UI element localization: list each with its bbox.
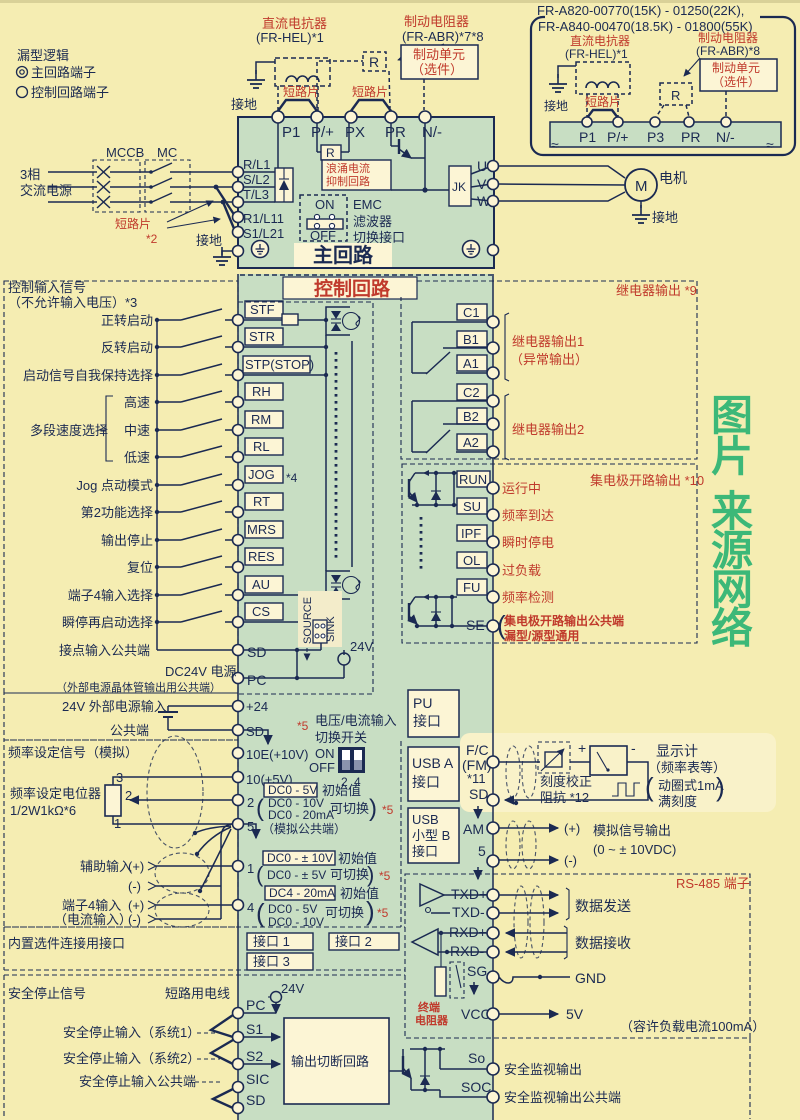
svg-text:N/-: N/-: [716, 129, 735, 145]
svg-text:JK: JK: [452, 180, 466, 194]
svg-text:AM: AM: [463, 821, 484, 837]
svg-text:1: 1: [247, 861, 254, 876]
svg-text:接口: 接口: [412, 844, 438, 859]
svg-text:阻抗 *12: 阻抗 *12: [540, 790, 589, 805]
svg-text:复位: 复位: [127, 560, 153, 575]
svg-text:抑制回路: 抑制回路: [326, 174, 370, 188]
svg-text:(FR-HEL)*1: (FR-HEL)*1: [256, 30, 324, 45]
svg-text:短路片: 短路片: [352, 84, 388, 99]
svg-text:中速: 中速: [124, 423, 150, 438]
svg-text:OFF: OFF: [310, 228, 336, 243]
svg-text:制动电阻器: 制动电阻器: [698, 31, 758, 45]
svg-text:可切换: 可切换: [325, 905, 364, 920]
svg-text:VCC: VCC: [461, 1006, 491, 1022]
svg-text:频率设定电位器: 频率设定电位器: [10, 786, 101, 801]
svg-text:（选件）: （选件）: [411, 62, 463, 77]
svg-text:SU: SU: [463, 499, 481, 514]
svg-text:≈: ≈: [766, 137, 774, 153]
svg-text:接口 3: 接口 3: [253, 954, 290, 969]
svg-text:OL: OL: [463, 553, 480, 568]
svg-text:安全监视输出: 安全监视输出: [504, 1062, 582, 1077]
svg-text:启动信号自我保持选择: 启动信号自我保持选择: [23, 368, 153, 383]
svg-text:终端: 终端: [418, 1000, 440, 1014]
svg-text:OFF: OFF: [309, 760, 335, 775]
svg-text:制动单元: 制动单元: [413, 47, 465, 62]
svg-text:（频率表等）: （频率表等）: [648, 760, 726, 775]
svg-text:切换开关: 切换开关: [315, 730, 367, 745]
svg-text:RL: RL: [253, 439, 270, 454]
svg-text:(: (: [256, 795, 264, 822]
svg-text:直流电抗器: 直流电抗器: [570, 33, 630, 48]
svg-text:频率设定信号（模拟）: 频率设定信号（模拟）: [8, 745, 138, 760]
svg-text:R: R: [326, 146, 335, 160]
svg-text:ON: ON: [315, 746, 335, 761]
svg-text:继电器输出2: 继电器输出2: [512, 422, 584, 437]
svg-text:GND: GND: [575, 970, 606, 986]
svg-text:CS: CS: [252, 604, 270, 619]
svg-text:B1: B1: [463, 332, 479, 347]
svg-text:滤波器: 滤波器: [353, 214, 392, 229]
svg-text:接口 1: 接口 1: [253, 934, 290, 949]
svg-text:数据接收: 数据接收: [575, 935, 631, 951]
svg-text:接口: 接口: [412, 774, 440, 790]
svg-text:R: R: [671, 88, 680, 103]
svg-text:24V: 24V: [350, 639, 373, 654]
svg-text:P/+: P/+: [311, 124, 334, 141]
svg-text:SOC: SOC: [461, 1079, 491, 1095]
svg-text:制动单元: 制动单元: [712, 61, 760, 75]
svg-text:): ): [369, 795, 377, 822]
svg-text:R: R: [369, 54, 379, 70]
svg-text:24V: 24V: [281, 981, 304, 996]
svg-text:2: 2: [247, 795, 254, 810]
svg-text:RES: RES: [248, 549, 275, 564]
svg-text:多段速度选择: 多段速度选择: [30, 423, 108, 438]
svg-text:(+): (+): [564, 821, 580, 836]
svg-text:初始值: 初始值: [322, 783, 361, 798]
svg-text:短路片: 短路片: [585, 94, 621, 109]
svg-text:5: 5: [247, 819, 254, 834]
svg-text:（外部电源晶体管输出用公共端）: （外部电源晶体管输出用公共端）: [56, 680, 221, 694]
svg-text:交流电源: 交流电源: [20, 183, 72, 198]
svg-text:安全停止输入公共端: 安全停止输入公共端: [79, 1074, 196, 1089]
svg-text:频率到达: 频率到达: [502, 508, 554, 523]
svg-text:RXD-: RXD-: [450, 943, 485, 959]
svg-text:RS-485 端子: RS-485 端子: [676, 876, 750, 891]
svg-text:*11: *11: [467, 771, 486, 786]
svg-text:DC0 - ± 5V: DC0 - ± 5V: [267, 868, 326, 882]
svg-text:电压/电流输入: 电压/电流输入: [315, 713, 397, 728]
svg-text:浪涌电流: 浪涌电流: [326, 161, 370, 175]
svg-text:(-): (-): [128, 912, 141, 927]
svg-text:PR: PR: [385, 124, 406, 141]
svg-text:RH: RH: [252, 384, 271, 399]
svg-text:SE: SE: [466, 617, 485, 633]
svg-text:(FR-HEL)*1: (FR-HEL)*1: [565, 47, 628, 61]
svg-text:5: 5: [478, 843, 486, 859]
svg-text:低速: 低速: [124, 450, 150, 465]
svg-text:控制回路: 控制回路: [314, 277, 391, 300]
svg-text:（容许负载电流100mA）: （容许负载电流100mA）: [620, 1019, 765, 1034]
svg-text:可切换: 可切换: [330, 867, 369, 882]
svg-text:C2: C2: [463, 385, 480, 400]
svg-text:(+): (+): [128, 859, 144, 874]
svg-text:（不允许输入电压）*3: （不允许输入电压）*3: [8, 295, 137, 310]
svg-text:切换接口: 切换接口: [353, 230, 405, 245]
svg-text:EMC: EMC: [353, 197, 382, 212]
svg-text:控制回路端子: 控制回路端子: [31, 85, 109, 100]
svg-text:4: 4: [247, 900, 254, 915]
svg-text:SOURCE: SOURCE: [302, 597, 314, 644]
svg-text:STF: STF: [250, 302, 275, 317]
svg-text:DC0 - 5V: DC0 - 5V: [268, 902, 317, 916]
svg-text:MCCB: MCCB: [106, 145, 144, 160]
svg-text:满刻度: 满刻度: [658, 794, 697, 809]
svg-text:短路片: 短路片: [283, 84, 319, 99]
svg-text:STR: STR: [249, 329, 275, 344]
svg-text:（选件）: （选件）: [712, 75, 760, 89]
svg-text:接点输入公共端: 接点输入公共端: [59, 643, 150, 658]
svg-text:正转启动: 正转启动: [101, 313, 153, 328]
svg-text:集电极开路输出公共端: 集电极开路输出公共端: [503, 613, 624, 628]
svg-text:(FR-ABR)*7*8: (FR-ABR)*7*8: [402, 29, 484, 44]
svg-text:直流电抗器: 直流电抗器: [262, 16, 327, 31]
svg-text:数据发送: 数据发送: [575, 898, 631, 914]
svg-text:+24: +24: [246, 699, 268, 714]
svg-text:安全停止输入（系统1）: 安全停止输入（系统1）: [63, 1025, 200, 1040]
svg-text:-: -: [631, 740, 636, 756]
svg-text:): ): [366, 896, 375, 926]
svg-text:P3: P3: [647, 129, 664, 145]
svg-text:可切换: 可切换: [330, 801, 369, 816]
svg-text:24V 外部电源输入: 24V 外部电源输入: [62, 699, 167, 714]
svg-text:PC: PC: [247, 672, 266, 688]
svg-text:S1/L21: S1/L21: [243, 226, 284, 241]
svg-text:(: (: [256, 898, 265, 928]
svg-text:RM: RM: [251, 412, 271, 427]
svg-text:接口 2: 接口 2: [335, 934, 372, 949]
svg-text:PC: PC: [246, 997, 265, 1013]
svg-text:主回路端子: 主回路端子: [31, 65, 96, 80]
svg-text:T/L3: T/L3: [243, 187, 269, 202]
svg-text:A1: A1: [463, 356, 479, 371]
svg-text:1/2W1kΩ*6: 1/2W1kΩ*6: [10, 803, 76, 818]
svg-text:SD: SD: [469, 786, 488, 802]
svg-text:接地: 接地: [544, 98, 568, 113]
svg-text:动圈式1mA: 动圈式1mA: [658, 778, 724, 793]
svg-text:ON: ON: [315, 197, 335, 212]
svg-text:继电器输出1: 继电器输出1: [512, 334, 584, 349]
svg-text:5V: 5V: [566, 1006, 584, 1022]
svg-text:SD: SD: [247, 644, 266, 660]
svg-text:显示计: 显示计: [656, 743, 698, 759]
svg-text:AU: AU: [252, 577, 270, 592]
svg-text:(-): (-): [564, 853, 577, 868]
svg-text:短路片: 短路片: [115, 216, 151, 231]
svg-text:安全监视输出公共端: 安全监视输出公共端: [504, 1090, 621, 1105]
svg-text:F/C: F/C: [466, 742, 489, 758]
svg-text:PR: PR: [681, 129, 700, 145]
svg-text:（异常输出）: （异常输出）: [510, 352, 588, 367]
svg-text:B2: B2: [463, 409, 479, 424]
svg-text:（模拟公共端）: （模拟公共端）: [262, 822, 346, 836]
svg-text:主回路: 主回路: [313, 243, 374, 267]
svg-text:RUN: RUN: [459, 472, 487, 487]
svg-text:继电器输出 *9: 继电器输出 *9: [616, 283, 697, 298]
svg-text:频率检测: 频率检测: [502, 590, 554, 605]
svg-text:高速: 高速: [124, 395, 150, 410]
svg-text:(: (: [645, 772, 654, 802]
svg-text:10E(+10V): 10E(+10V): [246, 747, 309, 762]
svg-text:JOG: JOG: [248, 467, 275, 482]
svg-text:安全停止输入（系统2）: 安全停止输入（系统2）: [63, 1051, 200, 1066]
svg-text:SD: SD: [246, 724, 264, 739]
svg-text:DC0 - 5V: DC0 - 5V: [268, 783, 317, 797]
svg-text:接地: 接地: [231, 97, 257, 112]
svg-text:短路用电线: 短路用电线: [165, 986, 230, 1001]
svg-text:输出切断回路: 输出切断回路: [291, 1054, 369, 1069]
svg-text:STP(STOP): STP(STOP): [245, 357, 314, 372]
svg-text:TXD+: TXD+: [451, 886, 487, 902]
svg-text:端子4输入选择: 端子4输入选择: [68, 588, 153, 603]
svg-text:模拟信号输出: 模拟信号输出: [593, 823, 671, 838]
svg-text:(0 ~ ± 10VDC): (0 ~ ± 10VDC): [593, 842, 676, 857]
svg-text:输出停止: 输出停止: [101, 533, 153, 548]
svg-text:电阻器: 电阻器: [415, 1013, 449, 1027]
svg-text:R/L1: R/L1: [243, 157, 270, 172]
svg-text:PX: PX: [345, 124, 365, 141]
svg-text:小型 B: 小型 B: [412, 828, 450, 843]
svg-text:C1: C1: [463, 305, 480, 320]
svg-text:图: 图: [711, 392, 753, 439]
svg-text:USB: USB: [412, 812, 439, 827]
svg-text:FU: FU: [463, 580, 480, 595]
svg-text:USB A: USB A: [412, 755, 454, 771]
svg-text:*4: *4: [286, 471, 298, 485]
svg-text:): ): [367, 862, 374, 887]
svg-text:刻度校正: 刻度校正: [540, 774, 592, 789]
svg-text:*2: *2: [146, 232, 158, 246]
svg-text:*5: *5: [382, 803, 394, 817]
svg-text:S/L2: S/L2: [243, 172, 270, 187]
svg-text:PU: PU: [413, 695, 432, 711]
svg-text:接口: 接口: [413, 713, 441, 729]
svg-text:DC0 - ± 10V: DC0 - ± 10V: [267, 851, 333, 865]
svg-text:（电流输入）: （电流输入）: [54, 912, 132, 927]
svg-text:R1/L11: R1/L11: [243, 211, 284, 226]
svg-text:瞬停再启动选择: 瞬停再启动选择: [62, 615, 153, 630]
svg-text:运行中: 运行中: [502, 481, 541, 496]
svg-text:瞬时停电: 瞬时停电: [502, 535, 554, 550]
svg-text:内置选件连接用接口: 内置选件连接用接口: [8, 936, 125, 951]
svg-text:片: 片: [711, 433, 753, 480]
svg-text:反转启动: 反转启动: [101, 340, 153, 355]
svg-text:SG: SG: [467, 963, 487, 979]
svg-text:DC4 - 20mA: DC4 - 20mA: [269, 886, 335, 900]
svg-text:S2: S2: [246, 1048, 263, 1064]
svg-text:SD: SD: [246, 1092, 265, 1108]
svg-text:P/+: P/+: [607, 129, 628, 145]
svg-text:公共端: 公共端: [110, 723, 149, 738]
svg-text:接地: 接地: [196, 233, 222, 248]
svg-text:(-): (-): [128, 879, 141, 894]
svg-text:≈: ≈: [551, 137, 559, 153]
svg-text:): ): [716, 772, 725, 802]
svg-text:过负载: 过负载: [502, 563, 541, 578]
svg-text:RXD+: RXD+: [449, 924, 487, 940]
svg-text:TXD-: TXD-: [452, 904, 485, 920]
svg-text:(: (: [256, 862, 264, 887]
svg-text:FR-A820-00770(15K) - 01250(22K: FR-A820-00770(15K) - 01250(22K),: [537, 3, 744, 18]
svg-text:控制输入信号: 控制输入信号: [8, 280, 86, 295]
svg-text:接地: 接地: [652, 210, 678, 225]
svg-text:A2: A2: [463, 435, 479, 450]
svg-text:+: +: [578, 740, 586, 756]
svg-text:漏型逻辑: 漏型逻辑: [17, 48, 69, 63]
svg-text:3相: 3相: [20, 167, 40, 182]
svg-text:(+): (+): [128, 898, 144, 913]
svg-text:U: U: [477, 158, 487, 174]
svg-text:SIC: SIC: [246, 1071, 269, 1087]
svg-text:So: So: [468, 1050, 485, 1066]
svg-text:DC0 - 20mA: DC0 - 20mA: [268, 808, 334, 822]
svg-text:*5: *5: [377, 906, 389, 920]
svg-text:第2功能选择: 第2功能选择: [81, 505, 153, 520]
svg-text:MC: MC: [157, 145, 177, 160]
svg-text:端子4输入: 端子4输入: [62, 898, 121, 913]
svg-text:*5: *5: [379, 869, 391, 883]
svg-text:IPF: IPF: [461, 526, 481, 541]
svg-text:*5: *5: [297, 719, 309, 733]
svg-text:辅助输入: 辅助输入: [80, 859, 132, 874]
svg-text:制动电阻器: 制动电阻器: [404, 14, 469, 29]
svg-text:电机: 电机: [659, 170, 687, 186]
svg-text:S1: S1: [246, 1021, 263, 1037]
svg-text:络: 络: [711, 605, 753, 652]
svg-text:RT: RT: [253, 494, 270, 509]
svg-text:V: V: [477, 176, 487, 192]
svg-text:漏型/源型通用: 漏型/源型通用: [504, 628, 579, 643]
svg-text:(FR-ABR)*8: (FR-ABR)*8: [696, 44, 760, 58]
svg-text:P1: P1: [282, 124, 300, 141]
svg-text:P1: P1: [579, 129, 596, 145]
svg-text:安全停止信号: 安全停止信号: [8, 986, 86, 1001]
svg-text:Jog 点动模式: Jog 点动模式: [76, 478, 153, 493]
svg-text:集电极开路输出 *10: 集电极开路输出 *10: [590, 473, 704, 488]
svg-text:MRS: MRS: [247, 522, 276, 537]
svg-text:DC24V 电源: DC24V 电源: [165, 664, 237, 679]
svg-text:M: M: [635, 178, 648, 195]
